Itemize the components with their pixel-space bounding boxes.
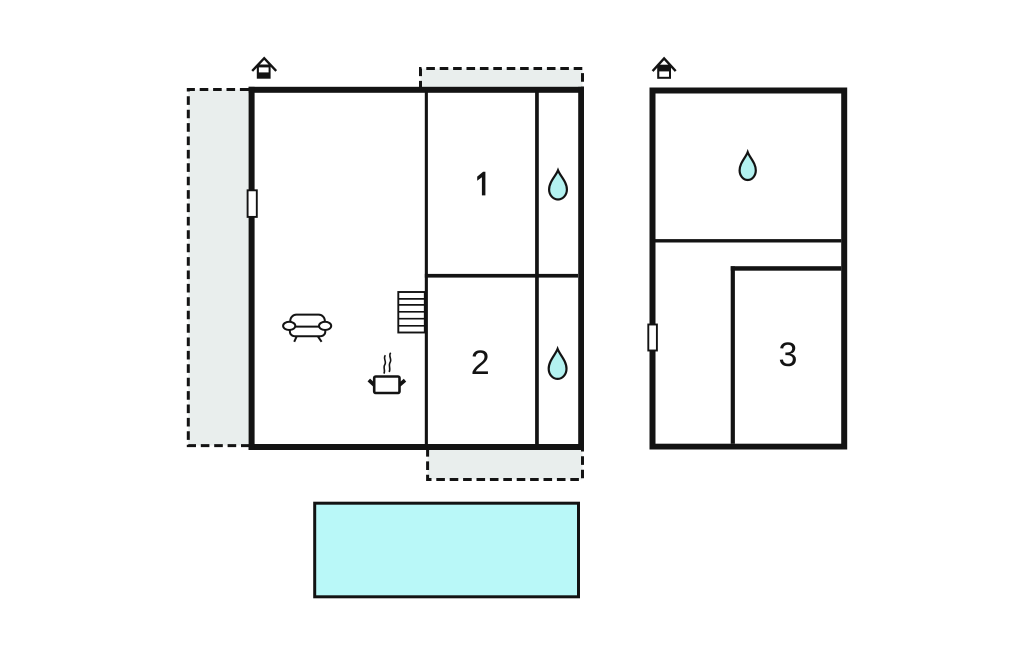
svg-text:2: 2 bbox=[471, 344, 490, 382]
svg-text:3: 3 bbox=[778, 336, 797, 374]
